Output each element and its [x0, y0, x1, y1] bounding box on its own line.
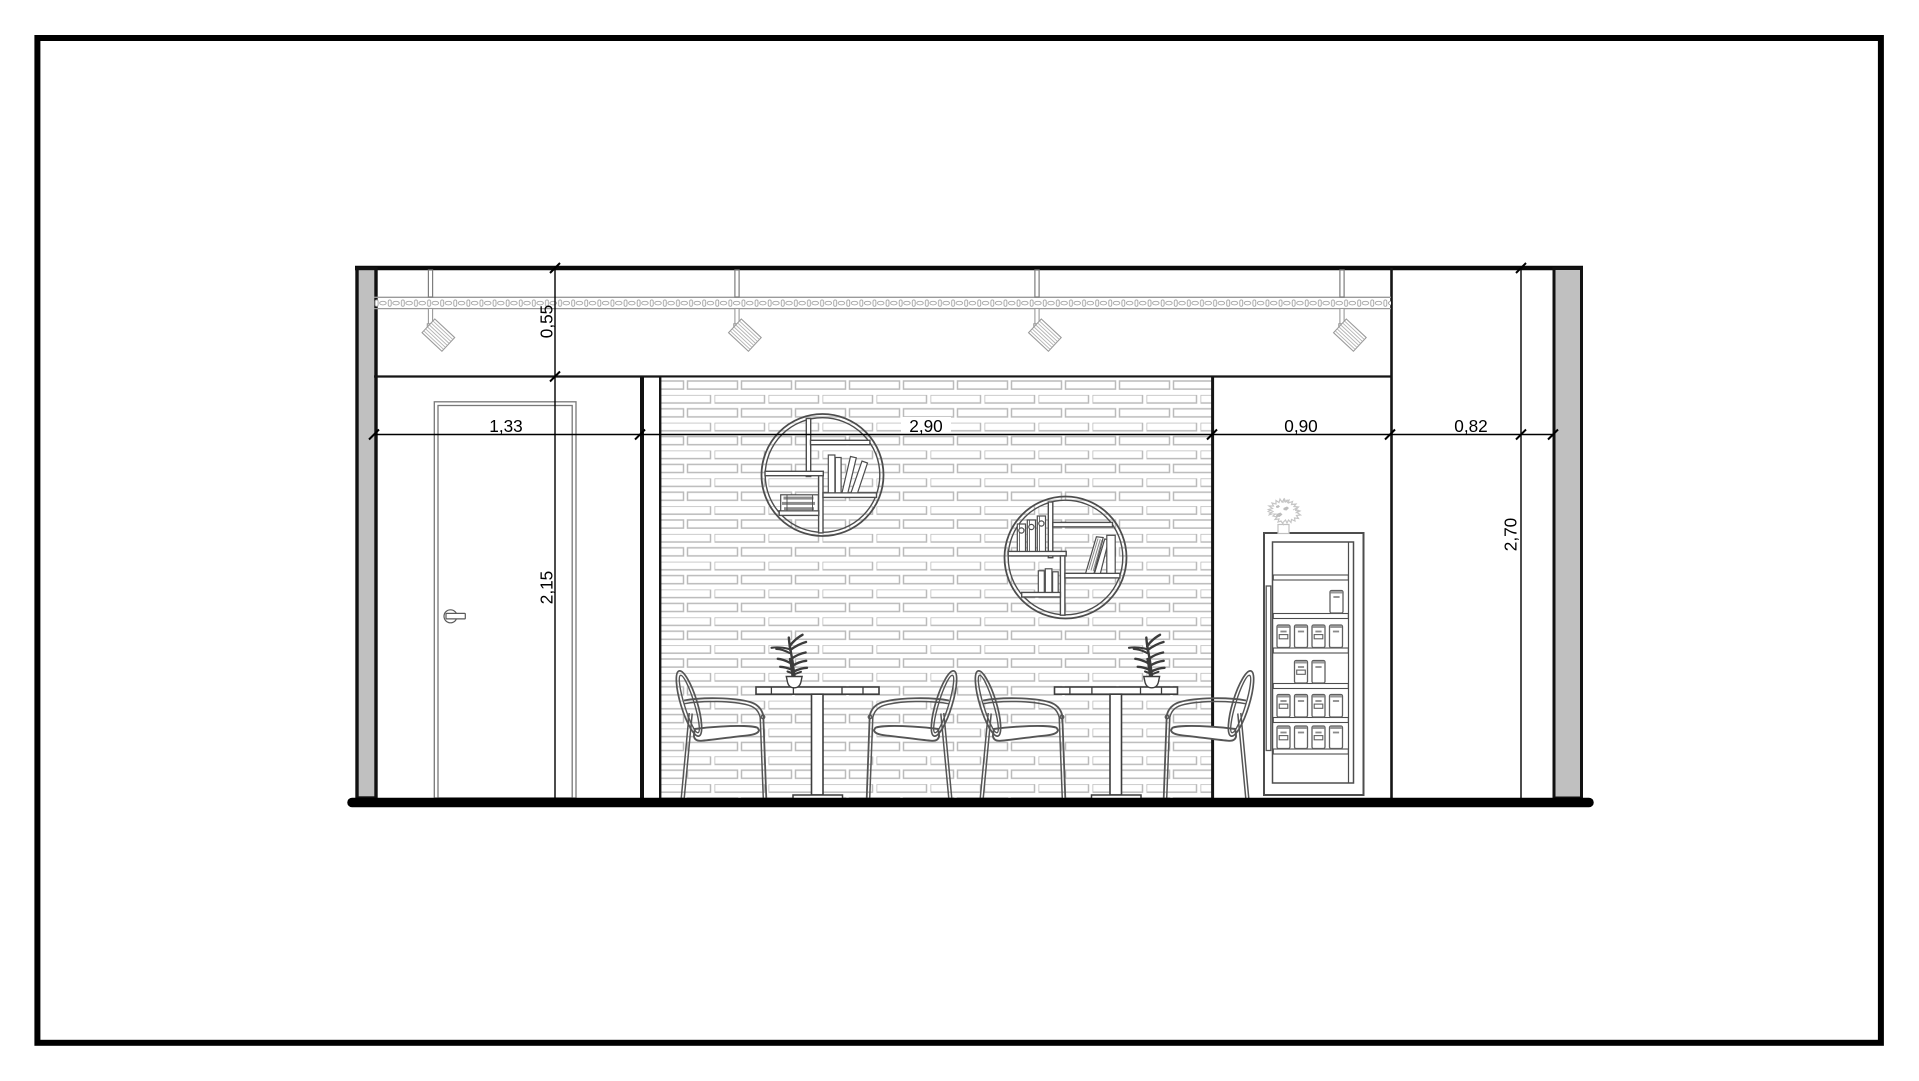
svg-text:0,90: 0,90 [1284, 416, 1317, 436]
svg-text:2,70: 2,70 [1501, 518, 1521, 551]
svg-text:1,33: 1,33 [489, 416, 522, 436]
svg-text:0,82: 0,82 [1454, 416, 1487, 436]
svg-text:0,55: 0,55 [537, 305, 557, 338]
svg-text:2,90: 2,90 [909, 416, 942, 436]
svg-text:2,15: 2,15 [537, 571, 557, 604]
